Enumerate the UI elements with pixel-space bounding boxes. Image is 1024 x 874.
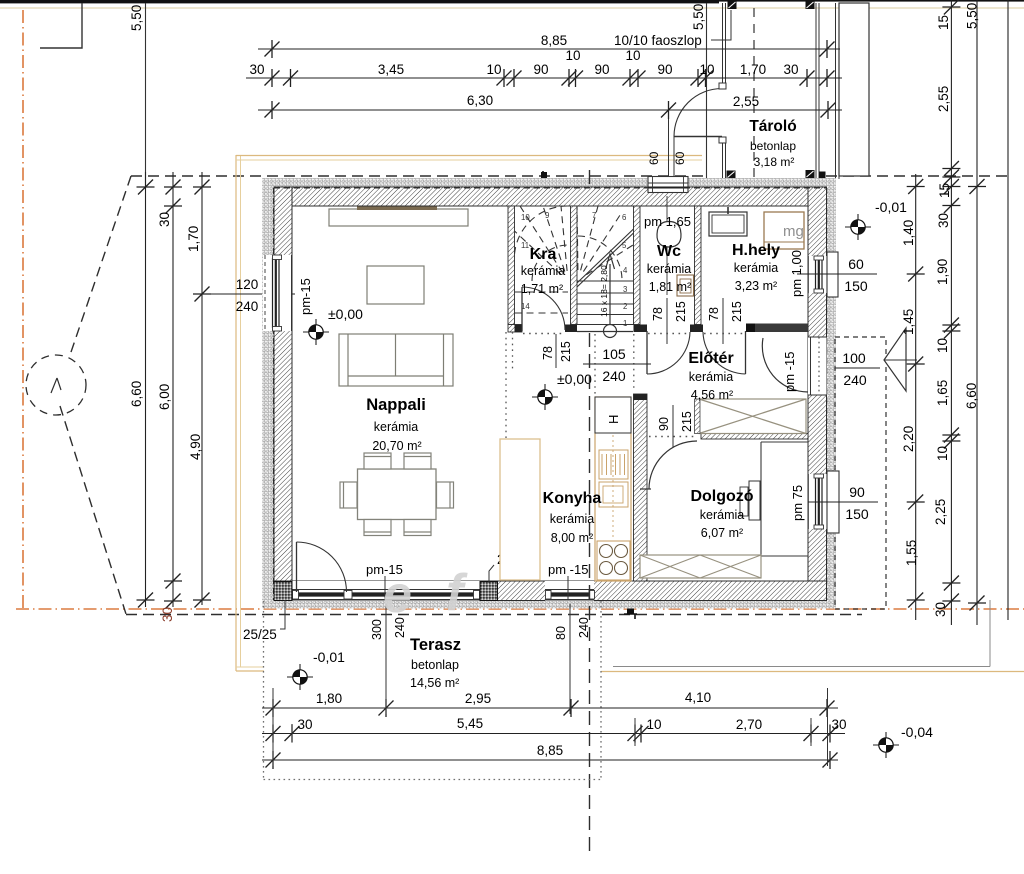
svg-text:8,85: 8,85 (541, 33, 567, 48)
svg-text:30: 30 (831, 717, 846, 732)
svg-text:215: 215 (730, 301, 744, 322)
svg-text:14,56 m²: 14,56 m² (410, 676, 459, 690)
svg-text:60: 60 (673, 151, 687, 165)
svg-text:90: 90 (594, 62, 609, 77)
svg-text:2,70: 2,70 (736, 717, 762, 732)
svg-text:2,55: 2,55 (733, 94, 759, 109)
svg-text:Wc: Wc (657, 243, 681, 260)
svg-text:1,40: 1,40 (901, 220, 916, 246)
svg-text:5,50: 5,50 (965, 3, 980, 29)
svg-text:kerámia: kerámia (647, 262, 692, 276)
svg-text:6,60: 6,60 (129, 381, 144, 407)
svg-text:90: 90 (657, 62, 672, 77)
svg-text:90: 90 (533, 62, 548, 77)
svg-text:kerámia: kerámia (700, 508, 745, 522)
svg-text:300: 300 (370, 619, 384, 640)
svg-text:2,25: 2,25 (933, 499, 948, 525)
svg-text:30: 30 (936, 213, 951, 228)
svg-text:pm 1,65: pm 1,65 (644, 214, 691, 229)
svg-text:150: 150 (844, 278, 868, 294)
svg-text:25/25: 25/25 (243, 627, 277, 642)
svg-text:2,55: 2,55 (936, 86, 951, 112)
svg-text:120: 120 (236, 277, 259, 292)
svg-text:10: 10 (625, 48, 640, 63)
svg-text:30: 30 (297, 717, 312, 732)
svg-text:7: 7 (592, 211, 596, 220)
svg-text:1: 1 (623, 319, 627, 328)
svg-text:2,95: 2,95 (465, 691, 491, 706)
svg-text:Tároló: Tároló (749, 118, 796, 135)
svg-text:20,70 m²: 20,70 m² (372, 439, 421, 453)
svg-text:15: 15 (937, 183, 952, 198)
svg-text:betonlap: betonlap (411, 658, 459, 672)
svg-text:H: H (606, 415, 621, 424)
svg-text:15: 15 (936, 15, 951, 30)
svg-text:60: 60 (647, 151, 661, 165)
svg-text:10: 10 (935, 446, 950, 461)
svg-text:1,90: 1,90 (935, 259, 950, 285)
svg-text:H.hely: H.hely (732, 242, 780, 259)
svg-text:kerámia: kerámia (550, 512, 595, 526)
svg-text:1,71 m²: 1,71 m² (521, 282, 563, 296)
svg-text:3,18 m²: 3,18 m² (754, 155, 795, 169)
svg-text:6,30: 6,30 (467, 93, 493, 108)
svg-text:-0,04: -0,04 (901, 724, 933, 740)
svg-text:8,00 m²: 8,00 m² (551, 531, 593, 545)
svg-text:1,65: 1,65 (935, 380, 950, 406)
svg-text:Nappali: Nappali (366, 396, 426, 414)
svg-text:pm -15: pm -15 (548, 562, 588, 577)
svg-text:10: 10 (521, 213, 530, 222)
svg-text:6,07 m²: 6,07 m² (701, 526, 743, 540)
svg-text:215: 215 (680, 411, 694, 432)
svg-text:1,81 m²: 1,81 m² (649, 280, 691, 294)
svg-text:3: 3 (623, 285, 627, 294)
svg-text:Dolgozó: Dolgozó (690, 488, 753, 505)
svg-text:2: 2 (623, 302, 627, 311)
svg-text:kerámia: kerámia (734, 261, 779, 275)
svg-text:4,90: 4,90 (188, 434, 203, 460)
svg-text:16 x 18= 2,80: 16 x 18= 2,80 (599, 265, 609, 317)
svg-text:240: 240 (236, 299, 259, 314)
svg-text:11: 11 (521, 241, 529, 250)
svg-text:2,20: 2,20 (901, 426, 916, 452)
svg-text:30: 30 (157, 212, 172, 227)
svg-text:pm -15: pm -15 (782, 352, 797, 392)
svg-text:9: 9 (545, 211, 549, 220)
svg-text:60: 60 (848, 256, 864, 272)
svg-text:Konyha: Konyha (543, 490, 602, 507)
svg-text:pm 1,00: pm 1,00 (789, 250, 804, 297)
svg-text:1,45: 1,45 (901, 309, 916, 335)
svg-text:1,70: 1,70 (740, 62, 766, 77)
svg-text:10: 10 (935, 338, 950, 353)
svg-text:4,10: 4,10 (685, 690, 711, 705)
svg-text:30: 30 (933, 602, 948, 617)
svg-text:10/10 faoszlop: 10/10 faoszlop (614, 33, 702, 48)
svg-text:5,50: 5,50 (129, 5, 144, 31)
svg-text:Kra: Kra (530, 246, 557, 263)
svg-text:pm-15: pm-15 (298, 278, 313, 315)
svg-text:150: 150 (845, 506, 869, 522)
svg-text:90: 90 (849, 484, 865, 500)
svg-text:6: 6 (622, 213, 626, 222)
svg-text:6,60: 6,60 (964, 383, 979, 409)
svg-text:e: e (383, 566, 412, 624)
svg-text:105: 105 (602, 346, 626, 362)
svg-text:240: 240 (602, 368, 626, 384)
svg-text:1,55: 1,55 (904, 540, 919, 566)
svg-text:10: 10 (646, 717, 661, 732)
svg-text:kerámia: kerámia (521, 264, 566, 278)
svg-text:6,00: 6,00 (157, 384, 172, 410)
svg-text:betonlap: betonlap (750, 139, 796, 153)
svg-text:100: 100 (842, 350, 866, 366)
svg-text:5: 5 (622, 241, 627, 250)
svg-text:10: 10 (565, 48, 580, 63)
svg-text:±0,00: ±0,00 (557, 371, 592, 387)
svg-text:240: 240 (577, 617, 591, 638)
svg-text:5,50: 5,50 (691, 4, 706, 30)
svg-text:3,23 m²: 3,23 m² (735, 279, 777, 293)
svg-text:kerámia: kerámia (374, 420, 419, 434)
svg-text:80: 80 (554, 626, 568, 640)
svg-text:Terasz: Terasz (410, 636, 461, 654)
svg-text:1,80: 1,80 (316, 691, 342, 706)
svg-text:78: 78 (541, 346, 555, 360)
svg-text:215: 215 (674, 301, 688, 322)
svg-text:kerámia: kerámia (689, 370, 734, 384)
svg-text:30: 30 (249, 62, 264, 77)
svg-text:78: 78 (707, 307, 721, 321)
svg-text:5,45: 5,45 (457, 716, 483, 731)
svg-text:mg: mg (783, 223, 804, 240)
svg-text:4: 4 (623, 266, 628, 275)
svg-text:-0,01: -0,01 (875, 199, 907, 215)
svg-text:30: 30 (783, 62, 798, 77)
svg-text:Előtér: Előtér (688, 350, 733, 367)
svg-text:1,70: 1,70 (186, 226, 201, 252)
svg-text:90: 90 (657, 417, 671, 431)
svg-text:30: 30 (160, 607, 175, 622)
svg-text:78: 78 (651, 307, 665, 321)
svg-text:3,45: 3,45 (378, 62, 404, 77)
svg-text:pm 75: pm 75 (790, 485, 805, 521)
svg-text:215: 215 (559, 341, 573, 362)
svg-text:±0,00: ±0,00 (328, 306, 363, 322)
svg-text:10: 10 (699, 62, 714, 77)
svg-text:240: 240 (843, 372, 867, 388)
svg-text:8,85: 8,85 (537, 743, 563, 758)
svg-text:-0,01: -0,01 (313, 649, 345, 665)
svg-text:4,56 m²: 4,56 m² (691, 388, 733, 402)
svg-text:10: 10 (486, 62, 501, 77)
